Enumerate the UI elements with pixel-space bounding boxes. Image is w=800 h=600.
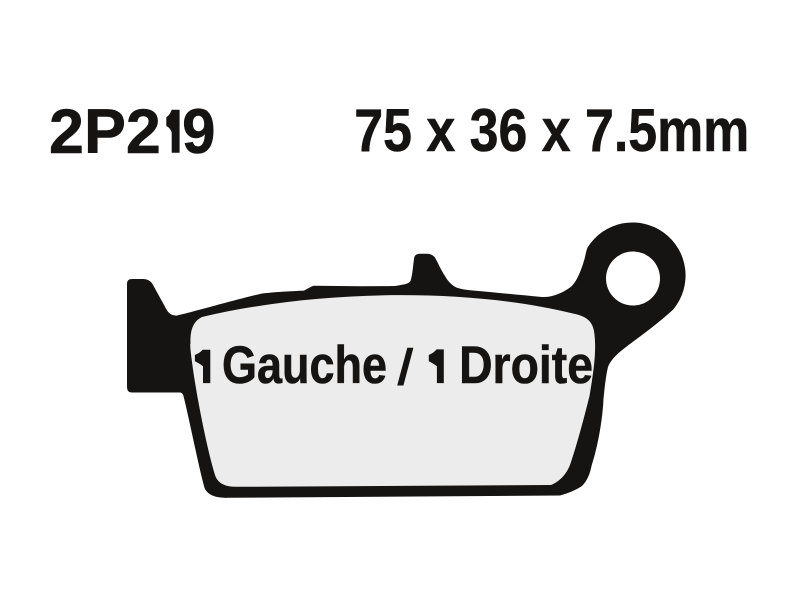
svg-text:Gauche: Gauche — [222, 336, 387, 395]
svg-text:Droite: Droite — [459, 336, 593, 395]
svg-text:9: 9 — [182, 97, 215, 167]
svg-text:2P2: 2P2 — [49, 97, 161, 167]
svg-text:75 x 36 x 7.5mm: 75 x 36 x 7.5mm — [354, 96, 749, 164]
